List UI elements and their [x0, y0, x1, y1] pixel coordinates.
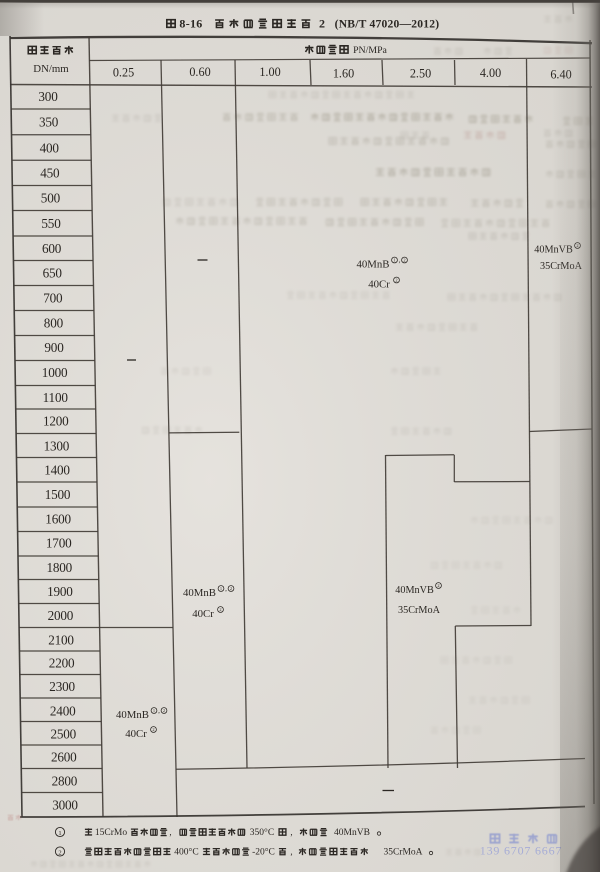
svg-text:2000: 2000 [48, 608, 74, 623]
svg-text:1400: 1400 [44, 462, 70, 477]
svg-text:1000: 1000 [42, 365, 68, 380]
svg-text:40Cr: 40Cr [125, 728, 147, 740]
svg-text:,: , [399, 257, 401, 265]
svg-text:1100: 1100 [43, 390, 69, 405]
svg-text:139 6707 6667: 139 6707 6667 [480, 844, 562, 858]
svg-text:2: 2 [437, 583, 439, 588]
svg-text:500: 500 [41, 191, 61, 206]
svg-text:2: 2 [395, 278, 397, 283]
svg-text:350: 350 [39, 115, 59, 130]
svg-text:400°C: 400°C [174, 847, 198, 858]
svg-text:1600: 1600 [45, 512, 71, 527]
svg-text:40Cr: 40Cr [192, 608, 214, 620]
svg-text:2100: 2100 [48, 633, 74, 648]
svg-text:2200: 2200 [49, 655, 75, 670]
svg-text:2: 2 [319, 17, 325, 31]
svg-text:15CrMo: 15CrMo [95, 828, 127, 838]
svg-text:2: 2 [403, 258, 405, 263]
svg-text:35CrMoA: 35CrMoA [383, 848, 422, 858]
svg-text:450: 450 [40, 166, 60, 181]
svg-text:2: 2 [58, 850, 61, 857]
svg-text:40MnB: 40MnB [357, 259, 390, 271]
svg-text:40MnB: 40MnB [183, 587, 216, 599]
svg-text:(NB/T 47020—2012): (NB/T 47020—2012) [335, 18, 440, 31]
svg-text:2800: 2800 [52, 774, 78, 789]
svg-text:1: 1 [153, 708, 155, 713]
svg-text:550: 550 [41, 216, 61, 231]
svg-text:800: 800 [44, 316, 64, 331]
svg-text:1700: 1700 [46, 536, 72, 551]
svg-text:35CrMoA: 35CrMoA [398, 605, 441, 616]
svg-text:1500: 1500 [45, 487, 71, 502]
svg-text:40MnVB: 40MnVB [334, 828, 370, 838]
svg-text:2400: 2400 [50, 704, 76, 719]
svg-text:40Cr: 40Cr [368, 279, 390, 291]
svg-text:1: 1 [58, 830, 61, 837]
svg-text:3000: 3000 [52, 798, 78, 813]
svg-text:40MnVB: 40MnVB [395, 585, 434, 596]
svg-text:1.00: 1.00 [259, 65, 280, 79]
svg-text:1800: 1800 [47, 560, 73, 575]
svg-text:,: , [169, 827, 171, 837]
svg-text:2300: 2300 [49, 679, 75, 694]
svg-text:8-16: 8-16 [179, 17, 202, 31]
svg-text:PN/MPa: PN/MPa [353, 45, 387, 56]
svg-text:2500: 2500 [51, 727, 77, 742]
svg-text:300: 300 [38, 89, 58, 104]
svg-text:2: 2 [152, 727, 154, 732]
svg-text:4.00: 4.00 [480, 66, 501, 80]
svg-text:0.25: 0.25 [113, 65, 134, 79]
svg-text:350°C: 350°C [250, 827, 274, 838]
svg-text:DN/mm: DN/mm [33, 63, 69, 75]
svg-text:2600: 2600 [51, 750, 77, 765]
svg-text:700: 700 [43, 291, 63, 306]
svg-text:1200: 1200 [43, 413, 69, 428]
svg-text:-20°C: -20°C [252, 847, 275, 858]
svg-text:1900: 1900 [47, 584, 73, 599]
svg-text:1.60: 1.60 [333, 66, 354, 80]
svg-text:,: , [290, 827, 292, 837]
svg-text:,: , [290, 847, 292, 857]
svg-text:,: , [158, 707, 160, 715]
svg-text:,: , [225, 585, 227, 593]
svg-text:40MnB: 40MnB [116, 709, 149, 721]
svg-text:2: 2 [219, 607, 221, 612]
svg-text:2: 2 [230, 586, 232, 591]
svg-text:600: 600 [42, 241, 62, 256]
svg-text:1: 1 [220, 586, 222, 591]
svg-text:900: 900 [44, 340, 64, 355]
svg-text:400: 400 [40, 140, 60, 155]
svg-text:2.50: 2.50 [410, 66, 431, 80]
svg-text:1: 1 [393, 258, 395, 263]
svg-text:1300: 1300 [44, 438, 70, 453]
svg-text:2: 2 [163, 708, 165, 713]
svg-text:0.60: 0.60 [189, 65, 210, 79]
svg-text:650: 650 [43, 266, 63, 281]
